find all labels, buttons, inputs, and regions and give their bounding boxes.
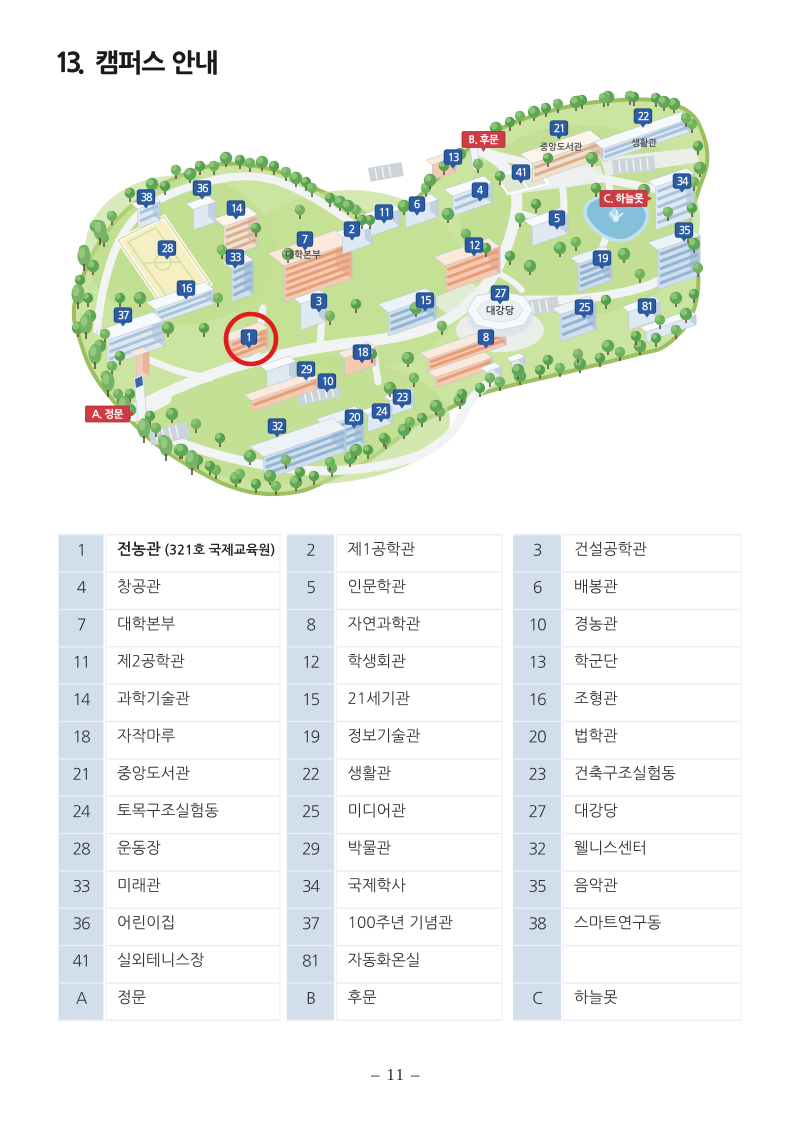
svg-text:– 11 –: – 11 – [370,1065,421,1084]
